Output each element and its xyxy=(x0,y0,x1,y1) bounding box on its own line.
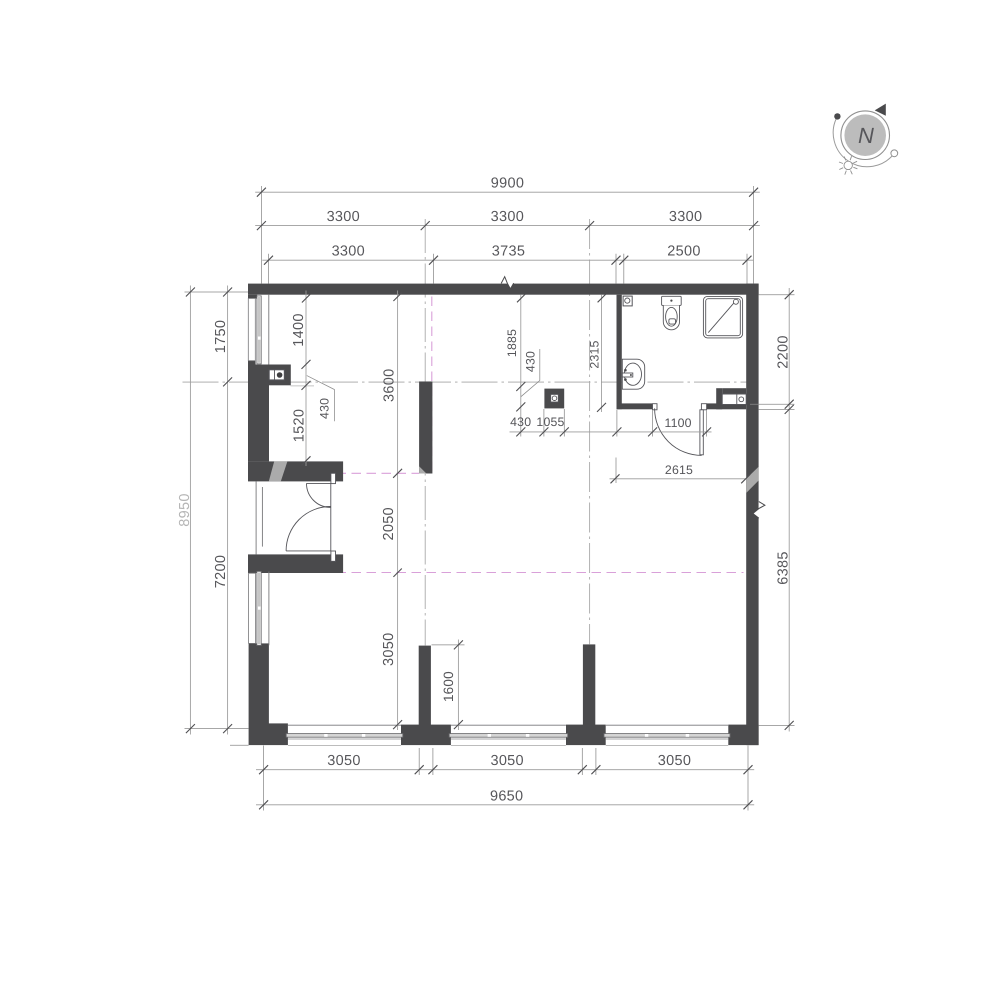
svg-text:9650: 9650 xyxy=(490,788,523,804)
svg-text:9900: 9900 xyxy=(491,176,524,192)
svg-text:6385: 6385 xyxy=(776,551,792,584)
svg-text:3050: 3050 xyxy=(490,753,523,769)
svg-text:2615: 2615 xyxy=(665,463,693,477)
svg-text:1600: 1600 xyxy=(441,671,456,702)
svg-text:430: 430 xyxy=(318,398,332,419)
svg-text:3300: 3300 xyxy=(332,244,365,260)
svg-text:2050: 2050 xyxy=(381,507,397,540)
svg-text:3050: 3050 xyxy=(658,753,691,769)
svg-text:2315: 2315 xyxy=(588,340,602,368)
svg-text:1055: 1055 xyxy=(536,415,564,429)
svg-text:1100: 1100 xyxy=(664,416,691,430)
svg-text:3050: 3050 xyxy=(381,632,397,665)
svg-text:2500: 2500 xyxy=(667,244,700,260)
svg-text:1885: 1885 xyxy=(505,329,519,357)
svg-text:2200: 2200 xyxy=(776,335,792,368)
svg-text:N: N xyxy=(858,123,874,148)
svg-text:1750: 1750 xyxy=(213,320,229,353)
svg-text:1400: 1400 xyxy=(291,313,307,346)
svg-text:3600: 3600 xyxy=(381,368,397,401)
svg-text:3300: 3300 xyxy=(327,209,360,225)
svg-text:430: 430 xyxy=(524,351,538,372)
svg-text:3050: 3050 xyxy=(327,753,360,769)
svg-text:1520: 1520 xyxy=(292,409,308,442)
svg-text:3300: 3300 xyxy=(491,209,524,225)
svg-text:3735: 3735 xyxy=(492,244,525,260)
svg-text:8950: 8950 xyxy=(177,493,193,526)
svg-text:430: 430 xyxy=(510,415,531,429)
svg-text:7200: 7200 xyxy=(213,555,229,588)
svg-text:3300: 3300 xyxy=(669,209,702,225)
